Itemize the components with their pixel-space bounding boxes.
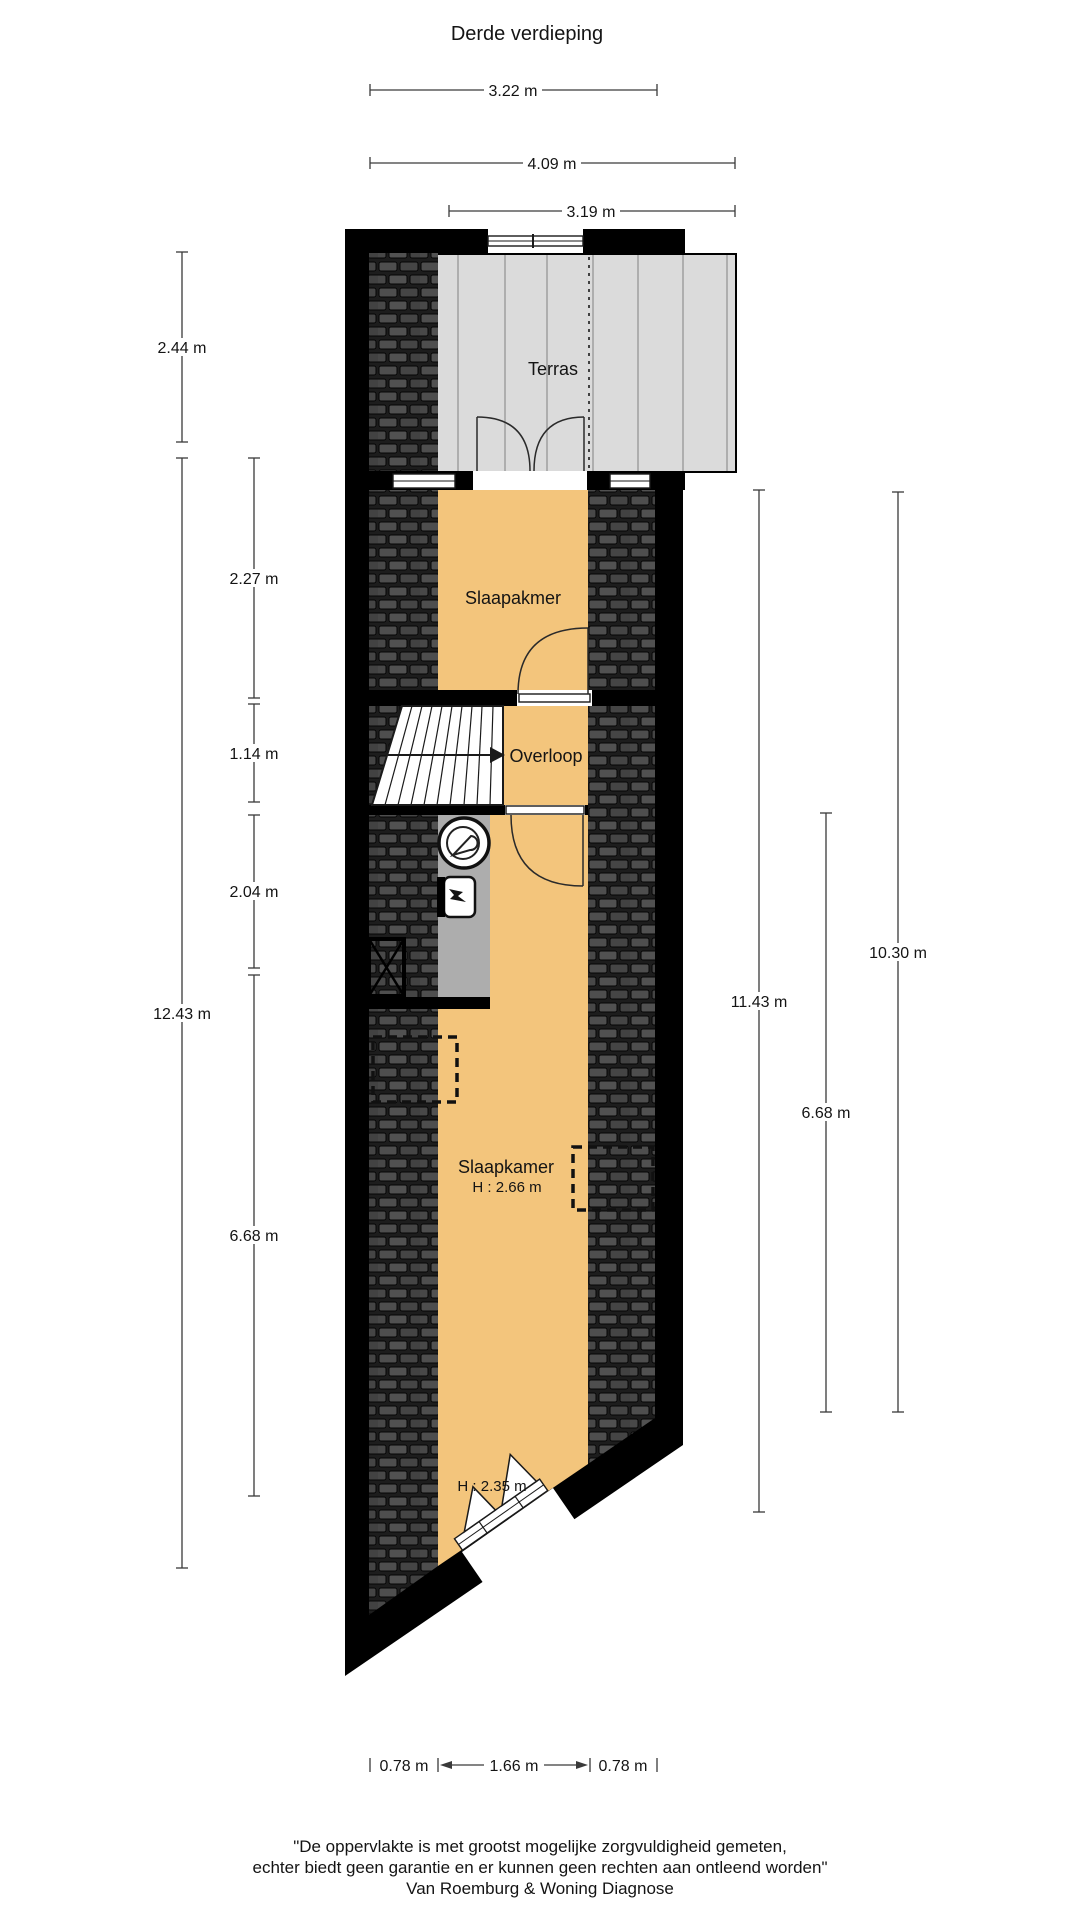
room-label-landing: Overloop <box>509 746 582 766</box>
disclaimer-line-1: "De oppervlakte is met grootst mogelijke… <box>293 1837 787 1856</box>
dim-2-04: 2.04 m <box>225 815 283 968</box>
dim-3-19: 3.19 m <box>449 202 735 221</box>
hall-floor <box>490 815 588 997</box>
window-terrace-right <box>610 474 650 488</box>
dim-2-27: 2.27 m <box>225 458 283 698</box>
dim-2-44: 2.44 m <box>153 252 211 442</box>
floor-plan-page: Derde verdieping <box>0 0 1080 1920</box>
dim-12-43: 12.43 m <box>148 458 216 1568</box>
dim-label: 1.14 m <box>230 746 279 763</box>
dim-label-078b: 0.78 m <box>599 1758 648 1775</box>
sink-icon <box>437 877 475 917</box>
page-title: Derde verdieping <box>451 23 603 45</box>
dim-label-078a: 0.78 m <box>380 1758 429 1775</box>
room-label-terras: Terras <box>528 359 578 379</box>
floor-plan-canvas: Derde verdieping <box>0 0 1080 1920</box>
arrow-right-icon <box>576 1761 588 1769</box>
dim-6-68-left: 6.68 m <box>225 975 283 1496</box>
dim-label: 3.19 m <box>567 204 616 221</box>
dim-label: 12.43 m <box>153 1006 211 1023</box>
dim-6-68-right: 6.68 m <box>797 813 855 1412</box>
wall-bedroom-landing <box>345 690 655 706</box>
toilet-icon <box>439 818 489 868</box>
roof-tiles-right <box>588 473 655 1464</box>
dim-label-166: 1.66 m <box>490 1758 539 1775</box>
dim-label: 2.04 m <box>230 884 279 901</box>
dim-label: 2.27 m <box>230 571 279 588</box>
dim-label: 6.68 m <box>802 1105 851 1122</box>
dim-label: 2.44 m <box>158 340 207 357</box>
window-top-facade <box>488 229 583 253</box>
dim-1-14: 1.14 m <box>225 704 283 802</box>
dim-3-22: 3.22 m <box>370 81 657 100</box>
dim-label: 10.30 m <box>869 945 927 962</box>
dim-label: 6.68 m <box>230 1228 279 1245</box>
disclaimer-line-2: echter biedt geen garantie en er kunnen … <box>252 1858 827 1877</box>
disclaimer-line-3: Van Roemburg & Woning Diagnose <box>406 1879 674 1898</box>
window-terrace-left <box>393 474 455 488</box>
dim-4-09: 4.09 m <box>370 154 735 173</box>
room-label-bedroom-top: Slaapakmer <box>465 588 561 608</box>
room-height-attic: H : 2.35 m <box>457 1478 526 1495</box>
dim-label: 11.43 m <box>731 994 788 1011</box>
roof-tiles-left-terrace <box>369 253 438 471</box>
disclaimer: "De oppervlakte is met grootst mogelijke… <box>252 1837 827 1898</box>
dim-bottom-row: 0.78 m 1.66 m 0.78 m <box>370 1758 657 1775</box>
dim-label: 3.22 m <box>489 83 538 100</box>
room-height-bedroom-main: H : 2.66 m <box>472 1179 541 1196</box>
roof-tiles-left <box>369 490 438 1615</box>
dim-11-43: 11.43 m <box>725 490 793 1512</box>
dim-10-30: 10.30 m <box>864 492 932 1412</box>
dim-label: 4.09 m <box>528 156 577 173</box>
room-label-bedroom-main: Slaapkamer <box>458 1157 554 1177</box>
arrow-left-icon <box>440 1761 452 1769</box>
wall-bath-bedroom <box>345 997 490 1009</box>
